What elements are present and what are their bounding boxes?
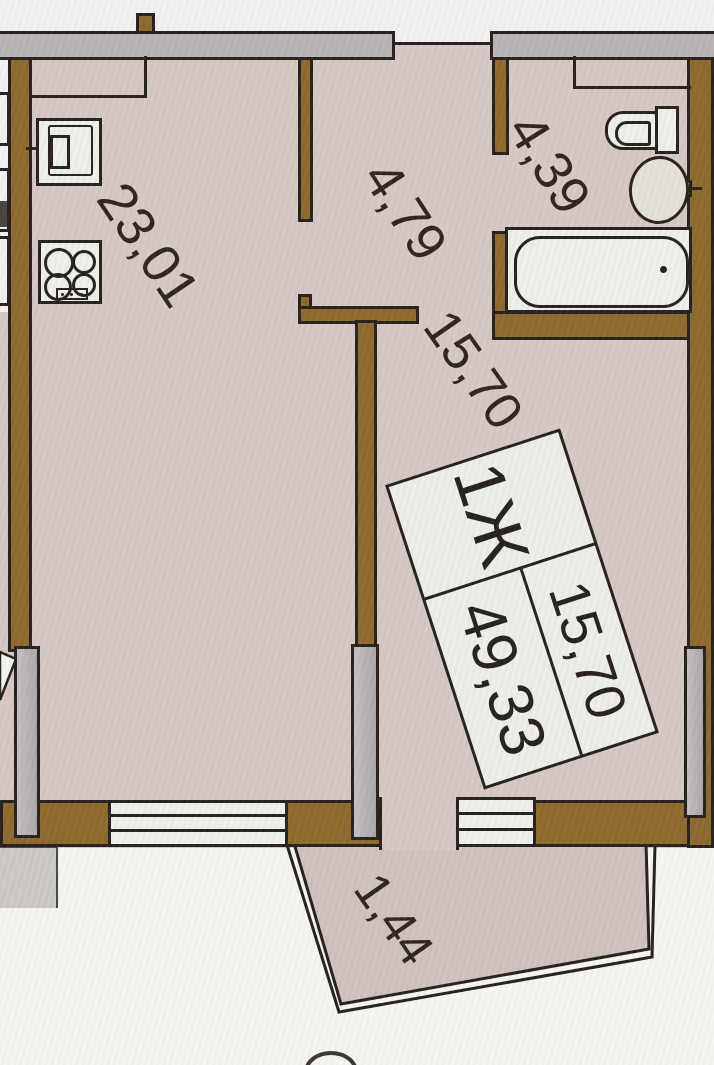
window-pane-line bbox=[459, 812, 533, 815]
facade-band-left bbox=[0, 31, 395, 60]
neighbor-fixture-detail bbox=[0, 201, 7, 227]
kitchen-niche-line bbox=[144, 56, 147, 98]
stove-icon bbox=[38, 240, 96, 298]
window-pilaster-left bbox=[14, 646, 40, 838]
balcony-outline bbox=[258, 833, 682, 1033]
wall-bathroom-bottom bbox=[492, 311, 692, 340]
floor-plan: 23,01 4,79 4,39 15,70 1,44 1Ж 15,70 49,3… bbox=[0, 0, 714, 1065]
wall-left bbox=[8, 56, 32, 652]
bathtub-drain bbox=[660, 266, 667, 273]
burner-icon bbox=[72, 250, 96, 274]
bathroom-niche-line bbox=[573, 56, 576, 89]
bathroom-niche-line bbox=[573, 86, 691, 89]
window-pilaster-middle bbox=[351, 644, 379, 840]
toilet-icon bbox=[605, 111, 658, 150]
window-pilaster-right bbox=[684, 646, 706, 818]
stove-knobs bbox=[56, 288, 88, 300]
wall-bottom bbox=[0, 800, 692, 847]
window-pane-line bbox=[459, 828, 533, 831]
balcony-inner-area bbox=[294, 843, 649, 1004]
facade-band-right bbox=[490, 31, 714, 60]
toilet-tank-icon bbox=[655, 106, 679, 154]
entrance-opening-line bbox=[392, 42, 493, 45]
wall-kitchen-upper bbox=[298, 56, 313, 222]
washbasin-faucet-line bbox=[688, 187, 702, 190]
window-pane-line bbox=[111, 814, 285, 817]
bathtub-icon bbox=[505, 227, 692, 313]
faucet-icon bbox=[50, 135, 70, 169]
toilet-bowl-inner bbox=[615, 121, 651, 146]
kitchen-sink-icon bbox=[36, 118, 96, 180]
neighbor-balcony-corner bbox=[0, 846, 58, 908]
kitchen-niche-line bbox=[30, 95, 147, 98]
window-icon bbox=[108, 800, 288, 847]
balcony-door-opening bbox=[379, 797, 459, 850]
window-pane-line bbox=[111, 829, 285, 832]
wall-middle bbox=[355, 320, 377, 652]
window-icon bbox=[456, 797, 536, 847]
